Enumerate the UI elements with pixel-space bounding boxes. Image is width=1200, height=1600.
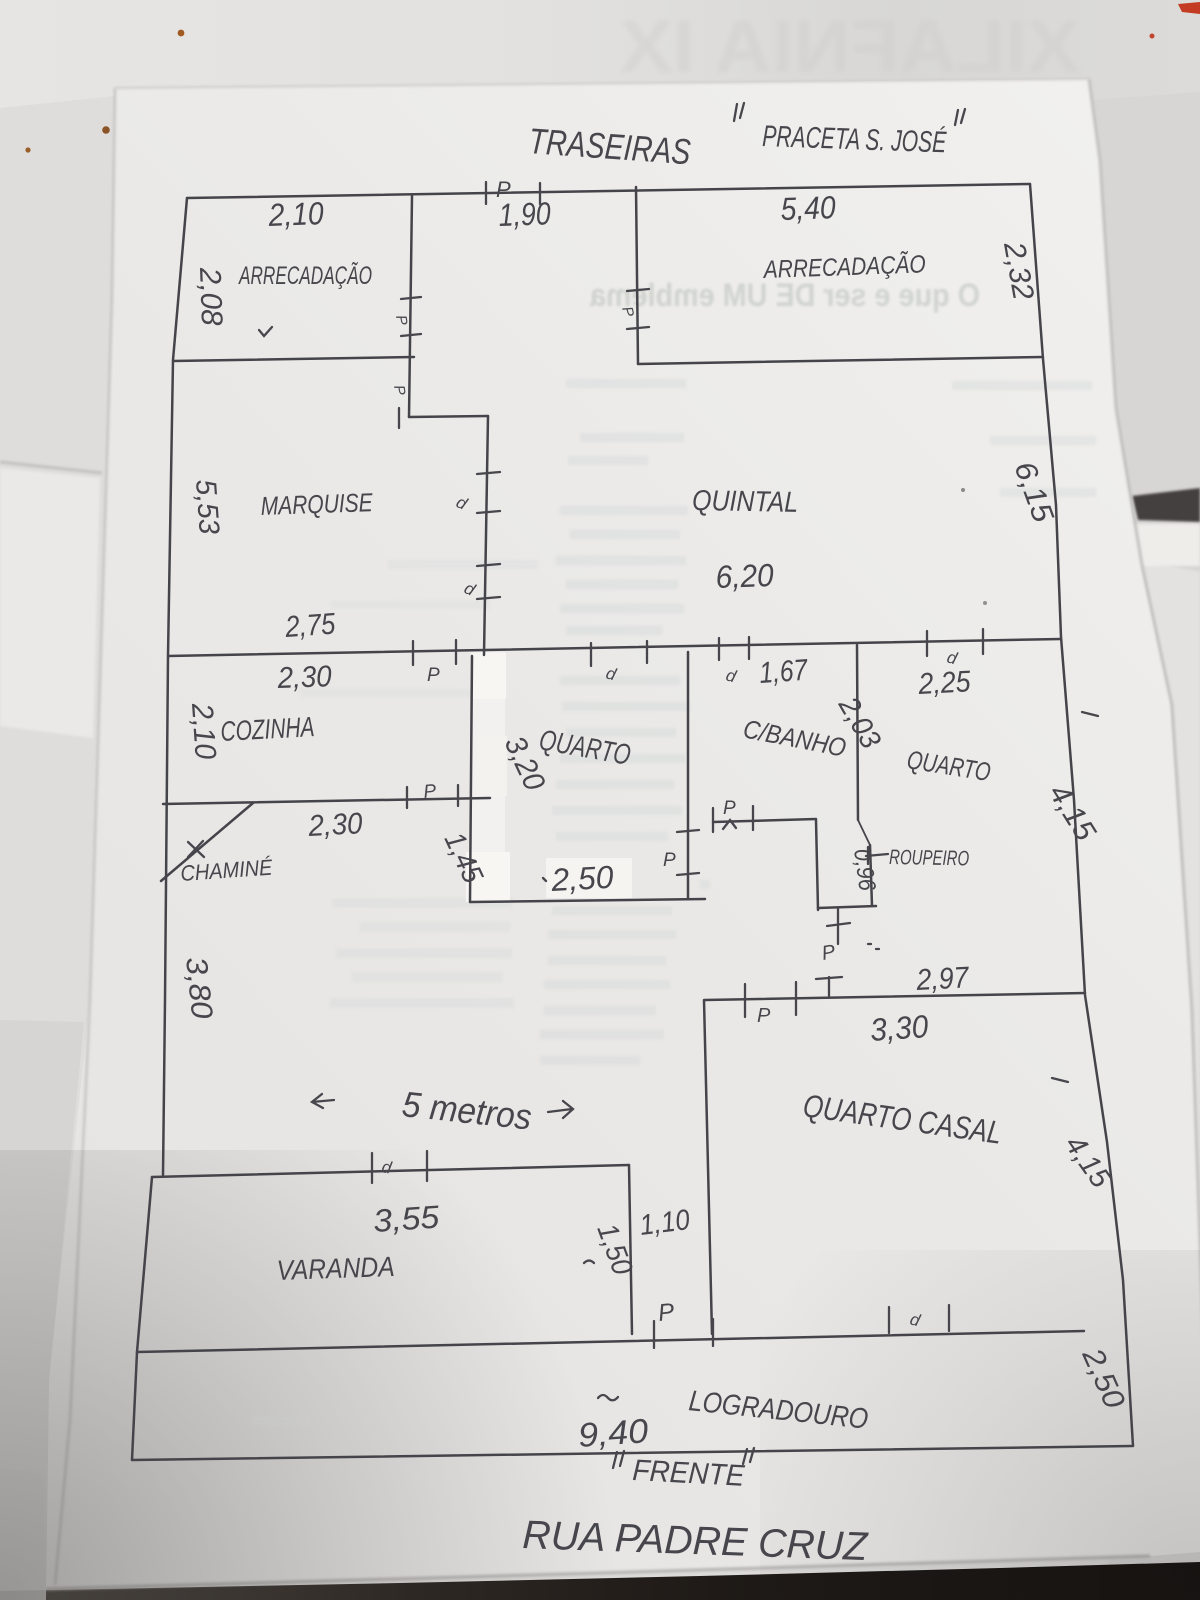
svg-text:P: P — [723, 798, 736, 819]
svg-text:ROUPEIRO: ROUPEIRO — [889, 846, 969, 870]
svg-text:2,30: 2,30 — [307, 807, 364, 843]
svg-text:P: P — [757, 1005, 771, 1027]
svg-text:ARRECADAÇÃO: ARRECADAÇÃO — [762, 249, 927, 284]
svg-text:QUINTAL: QUINTAL — [692, 485, 799, 519]
svg-text:2,25: 2,25 — [917, 665, 972, 701]
svg-text:1,90: 1,90 — [498, 195, 551, 233]
svg-text:3,55: 3,55 — [372, 1198, 441, 1239]
svg-text:FRENTE: FRENTE — [632, 1454, 746, 1493]
svg-text:2,97: 2,97 — [915, 961, 971, 997]
svg-text:3,30: 3,30 — [869, 1008, 930, 1048]
svg-text:VARANDA: VARANDA — [276, 1251, 395, 1286]
svg-text:P: P — [657, 1298, 676, 1327]
svg-text:1,67: 1,67 — [758, 654, 809, 690]
svg-text:2,75: 2,75 — [283, 608, 336, 644]
svg-text:2,50: 2,50 — [549, 859, 614, 898]
svg-text:P: P — [663, 850, 676, 871]
svg-text:COZINHA: COZINHA — [220, 711, 315, 747]
svg-text:MARQUISE: MARQUISE — [260, 487, 374, 521]
svg-text:6,20: 6,20 — [715, 557, 774, 595]
svg-text:2,10: 2,10 — [267, 195, 324, 233]
svg-text:3,80: 3,80 — [179, 955, 218, 1020]
svg-text:ARRECADAÇÃO: ARRECADAÇÃO — [238, 261, 372, 290]
svg-text:XILAFNIA IX: XILAFNIA IX — [620, 5, 1080, 88]
svg-text:5,40: 5,40 — [780, 189, 836, 227]
svg-text:2,10: 2,10 — [185, 701, 222, 760]
svg-text:PRACETA S. JOSÉ: PRACETA S. JOSÉ — [762, 120, 948, 159]
svg-text:1,10: 1,10 — [638, 1204, 692, 1242]
svg-text:9,40: 9,40 — [577, 1412, 650, 1455]
svg-text:P: P — [427, 665, 440, 686]
svg-text:2,30: 2,30 — [276, 660, 332, 695]
svg-text:2,08: 2,08 — [193, 266, 228, 326]
svg-text:P: P — [423, 781, 438, 803]
svg-text:5,53: 5,53 — [189, 478, 225, 535]
